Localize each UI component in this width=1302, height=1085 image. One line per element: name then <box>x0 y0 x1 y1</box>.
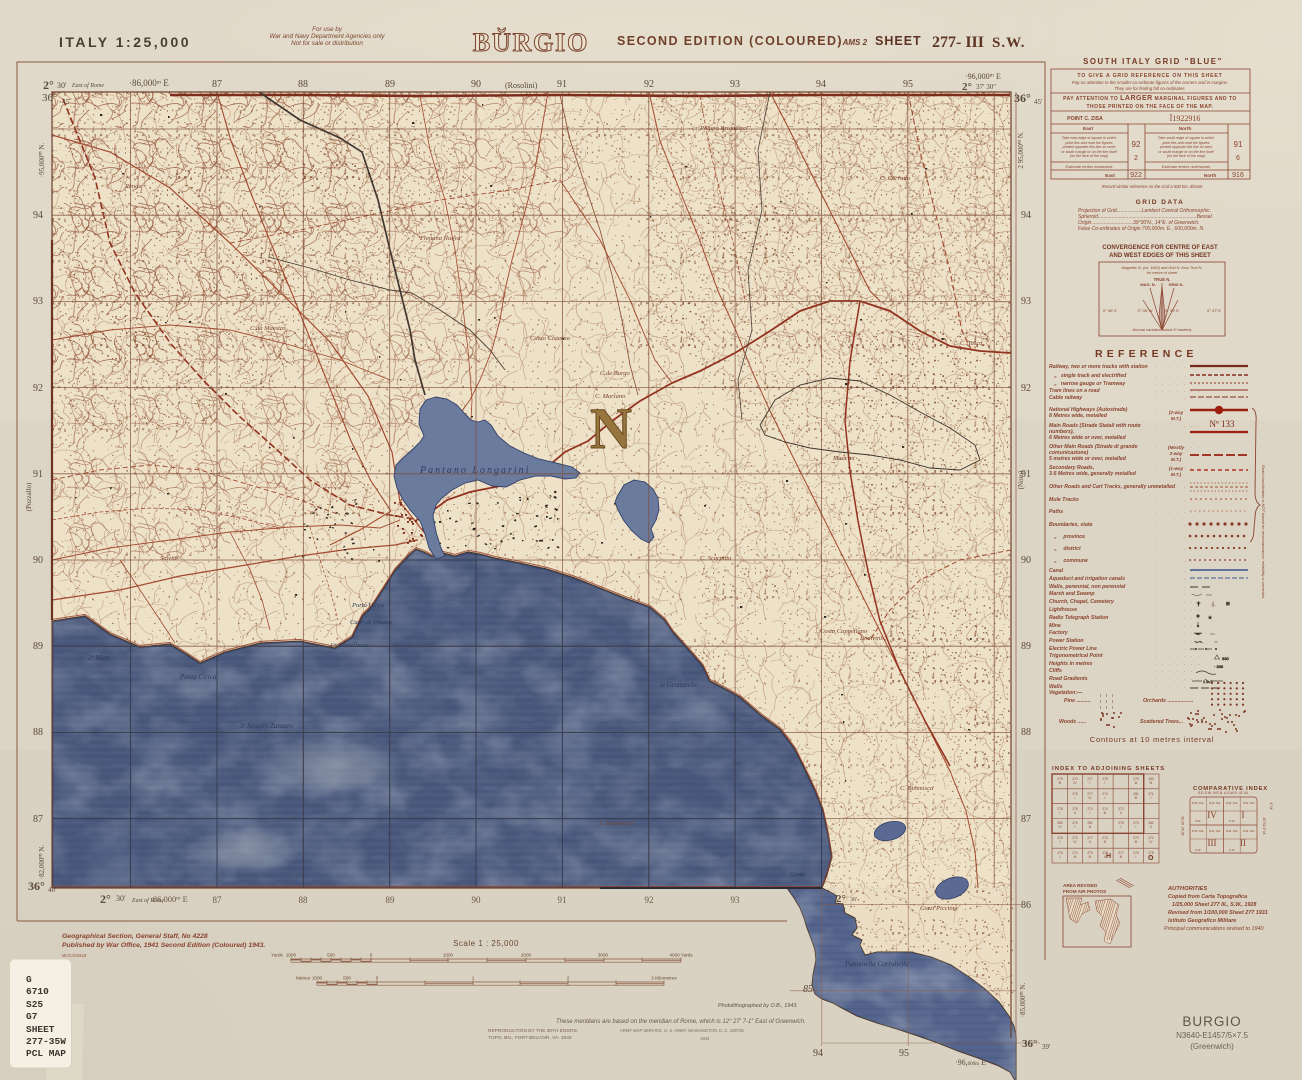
svg-text:88: 88 <box>33 727 43 738</box>
svg-text:39′: 39′ <box>1042 1043 1051 1051</box>
svg-text:2°: 2° <box>836 893 846 905</box>
svg-text:I: I <box>1105 796 1106 800</box>
svg-text:0° 47′ E: 0° 47′ E <box>1207 308 1221 313</box>
svg-text:92: 92 <box>1021 383 1031 394</box>
svg-text:III: III <box>1074 855 1077 859</box>
svg-text:C. Tasca: C. Tasca <box>960 340 983 347</box>
svg-text:Radio Telegraph Station: Radio Telegraph Station <box>1049 615 1108 621</box>
svg-text:Nº 133: Nº 133 <box>1209 419 1235 429</box>
svg-text:36°40′ 43°52: 36°40′ 43°52 <box>1181 816 1185 835</box>
svg-text:l. Scauniccio: l. Scauniccio <box>600 820 634 827</box>
svg-text:N.W. N.E.: N.W. N.E. <box>1209 801 1221 805</box>
svg-text:4000 Yards: 4000 Yards <box>669 953 693 958</box>
svg-text:Heights in metres: Heights in metres <box>1049 661 1093 667</box>
svg-text:M.T.): M.T.) <box>1171 457 1182 462</box>
svg-text:H: H <box>1106 853 1111 860</box>
svg-text:Walls, perennial, non perennia: Walls, perennial, non perennial <box>1049 584 1126 590</box>
svg-text:I: I <box>1060 811 1061 815</box>
svg-text:Yards: Yards <box>271 953 283 958</box>
svg-text:Estimate tenths eastwards: Estimate tenths eastwards <box>1066 164 1113 169</box>
svg-text:N: N <box>590 396 632 461</box>
svg-text:Scattered Trees...: Scattered Trees... <box>1140 719 1183 725</box>
svg-text:SHEET: SHEET <box>26 1024 55 1035</box>
svg-text:N.W. N.E.: N.W. N.E. <box>1192 829 1204 833</box>
svg-text:·95,000m N.: ·95,000m N. <box>38 143 47 178</box>
svg-text:Pantanella Corrubella: Pantanella Corrubella <box>844 960 909 968</box>
svg-text:S.W.: S.W. <box>992 35 1025 51</box>
svg-text:(1-way: (1-way <box>1169 466 1184 471</box>
svg-text:(Mostly: (Mostly <box>1168 445 1185 450</box>
svg-text:Vegetation:—: Vegetation:— <box>1049 690 1083 696</box>
svg-text:N.W. N.E.: N.W. N.E. <box>1243 829 1255 833</box>
svg-text:36°: 36° <box>1014 91 1031 105</box>
svg-text:93: 93 <box>33 296 43 307</box>
svg-text:Renda: Renda <box>124 183 142 190</box>
svg-text:2°: 2° <box>100 892 111 906</box>
svg-text:Canᵈᵒ di Pinona: Canᵈᵒ di Pinona <box>350 619 392 626</box>
svg-text:45′: 45′ <box>62 98 71 106</box>
svg-text:92: 92 <box>645 895 654 905</box>
svg-text:91: 91 <box>558 895 567 905</box>
svg-text:G7: G7 <box>26 1011 38 1022</box>
svg-text:SOUTH ITALY GRID "BLUE": SOUTH ITALY GRID "BLUE" <box>1083 57 1223 66</box>
svg-text:„ district: „ district <box>1049 546 1081 552</box>
svg-text:Pine ..........: Pine .......... <box>1064 698 1091 704</box>
svg-text:Scale 1 : 25,000: Scale 1 : 25,000 <box>453 939 519 948</box>
svg-text:I: I <box>1075 796 1076 800</box>
svg-text:False Co-ordinates of Origin 7: False Co-ordinates of Origin 700,000m. E… <box>1078 226 1204 232</box>
svg-text:Power Station: Power Station <box>1049 638 1084 644</box>
svg-text:Copied from Carta Topografica: Copied from Carta Topografica <box>1168 894 1247 900</box>
svg-text:C. Bimmisca: C. Bimmisca <box>900 785 933 792</box>
svg-text:Pantano Longarini: Pantano Longarini <box>419 465 530 476</box>
svg-text:Not for sale or distribution: Not for sale or distribution <box>291 40 363 47</box>
svg-text:40′: 40′ <box>48 886 57 894</box>
svg-text:III: III <box>1104 840 1107 844</box>
svg-text:2 95,000m N.: 2 95,000m N. <box>1017 131 1026 169</box>
svg-text:91: 91 <box>557 79 567 90</box>
svg-text:III: III <box>1120 855 1123 859</box>
svg-text:N.W. N.E.: N.W. N.E. <box>1192 801 1204 805</box>
svg-text:2°: 2° <box>43 78 54 92</box>
svg-text:I: I <box>1090 811 1091 815</box>
svg-text:le Grottarelle: le Grottarelle <box>660 681 698 689</box>
svg-text:Estimate tenths northwards: Estimate tenths northwards <box>1162 164 1210 169</box>
svg-text:II: II <box>1150 825 1152 829</box>
svg-text:ARMY MAP SERVICE, U. S. ARMY,: ARMY MAP SERVICE, U. S. ARMY, WASHINGTON… <box>620 1028 744 1033</box>
svg-text:Electric Power Line: Electric Power Line <box>1049 646 1097 652</box>
svg-text:Record similar reference on th: Record similar reference on the Grid a 5… <box>1102 184 1203 189</box>
svg-text:I: I <box>1090 781 1091 785</box>
svg-text:2°: 2° <box>962 81 972 93</box>
svg-text:.......: ....... <box>1155 646 1206 651</box>
svg-text:1000: 1000 <box>312 976 323 981</box>
svg-text:4°04: 4°04 <box>1269 802 1273 809</box>
svg-text:Published by War Office, 1941: Published by War Office, 1941 Second Edi… <box>62 942 265 949</box>
svg-text:·82,000m N.: ·82,000m N. <box>38 845 47 880</box>
svg-text:III: III <box>1135 781 1138 785</box>
svg-text:THOSE PRINTED ON THE FACE OF T: THOSE PRINTED ON THE FACE OF THE MAP. <box>1086 104 1213 110</box>
svg-text:II: II <box>1120 811 1122 815</box>
svg-text:(Rosolini): (Rosolini) <box>505 81 538 90</box>
svg-text:Grotta: Grotta <box>790 872 806 878</box>
svg-text:94: 94 <box>816 79 826 90</box>
svg-text:AREA REVISED: AREA REVISED <box>1063 883 1098 888</box>
svg-text:CONVERGENCE FOR CENTRE OF EAST: CONVERGENCE FOR CENTRE OF EAST <box>1102 245 1218 251</box>
svg-text:III: III <box>1104 811 1107 815</box>
svg-text:Maucini: Maucini <box>832 455 855 462</box>
svg-text:·86,000m E: ·86,000m E <box>150 894 188 904</box>
svg-text:91: 91 <box>1234 140 1243 149</box>
svg-text:I: I <box>1105 781 1106 785</box>
svg-text:Ī1922916: Ī1922916 <box>1170 114 1201 123</box>
svg-text:8 Metres wide, metalled: 8 Metres wide, metalled <box>1049 413 1108 419</box>
svg-text:·85,000m N.: ·85,000m N. <box>1019 983 1028 1018</box>
svg-text:500: 500 <box>343 976 351 981</box>
svg-text:36°: 36° <box>42 92 57 104</box>
svg-text:✝: ✝ <box>1196 601 1201 608</box>
svg-text:Principal communications revis: Principal communications revised to 1940… <box>1164 926 1265 932</box>
svg-text:87: 87 <box>33 814 43 825</box>
svg-text:3-5 Metres wide, generally met: 3-5 Metres wide, generally metalled <box>1049 471 1137 477</box>
svg-text:88: 88 <box>1021 727 1031 738</box>
svg-text:330: 330 <box>1222 656 1229 661</box>
svg-text:G: G <box>26 974 32 985</box>
svg-text:III: III <box>1135 796 1138 800</box>
svg-text:Marsh and Swamp: Marsh and Swamp <box>1049 591 1095 597</box>
svg-text:95: 95 <box>899 1048 909 1059</box>
svg-text:500: 500 <box>327 953 335 958</box>
svg-text:GRID DATA: GRID DATA <box>1136 199 1185 206</box>
svg-text:87: 87 <box>212 79 222 90</box>
svg-text:printed opposite this line so: printed opposite this line so west <box>1159 145 1213 149</box>
svg-text:1000: 1000 <box>443 953 454 958</box>
svg-text:1943: 1943 <box>700 1036 710 1041</box>
svg-text:C. Mariano: C. Mariano <box>595 393 626 400</box>
svg-text:⛪: ⛪ <box>1210 601 1216 608</box>
svg-text:III: III <box>1059 781 1062 785</box>
svg-text:89: 89 <box>33 641 43 652</box>
svg-text:III: III <box>1089 825 1092 829</box>
svg-text:S.W.: S.W. <box>1229 819 1235 823</box>
svg-text:N3640-E1457/5×7.5: N3640-E1457/5×7.5 <box>1176 1031 1248 1040</box>
svg-text:Revised from 1/100,000 Sheet: Revised from 1/100,000 Sheet 277 1931 <box>1168 910 1268 916</box>
svg-text:Photolithographed by O.B., 194: Photolithographed by O.B., 1943. <box>718 1003 798 1009</box>
svg-text:94: 94 <box>813 1048 823 1059</box>
svg-text:93: 93 <box>1021 296 1031 307</box>
svg-text:War and Navy Department Agenci: War and Navy Department Agencies only <box>269 33 385 40</box>
svg-text:I: I <box>1060 855 1061 859</box>
svg-text:(2-way: (2-way <box>1169 410 1184 415</box>
svg-text:N.W. N.E.: N.W. N.E. <box>1226 829 1238 833</box>
svg-text:SECOND EDITION (COLOURED): SECOND EDITION (COLOURED) <box>617 34 843 48</box>
svg-text:0: 0 <box>376 976 379 981</box>
svg-text:Aqueduct and irrigation canals: Aqueduct and irrigation canals <box>1048 576 1125 582</box>
svg-text:I: I <box>1242 810 1245 820</box>
svg-text:Canal: Canal <box>1049 568 1064 574</box>
svg-text:Cliffs: Cliffs <box>1049 668 1062 674</box>
svg-text:S.E.S.W. N.E.N. A S.W.S. 41°44: S.E.S.W. N.E.N. A S.W.S. 41°44 <box>1198 791 1248 795</box>
svg-text:30′: 30′ <box>57 81 67 90</box>
svg-text:Orchards ..................: Orchards .................. <box>1143 698 1193 704</box>
svg-text:Contours at 10 metres interval: Contours at 10 metres interval <box>1090 735 1214 744</box>
svg-text:II: II <box>1089 840 1091 844</box>
svg-text:POINT C. ZISA: POINT C. ZISA <box>1067 116 1103 122</box>
svg-text:(on the face of the map): (on the face of the map) <box>1070 154 1108 158</box>
svg-text:.......: ....... <box>1155 558 1206 563</box>
svg-text:92: 92 <box>33 383 43 394</box>
svg-text:Poggio Brigadieci: Poggio Brigadieci <box>699 125 748 132</box>
svg-text:Mine: Mine <box>1049 623 1061 629</box>
svg-text:ı: ı <box>1106 705 1107 711</box>
svg-text:.......: ....... <box>1155 584 1206 589</box>
svg-text:.......: ....... <box>1155 497 1206 502</box>
svg-text:- AMS 2: - AMS 2 <box>838 38 868 47</box>
svg-text:Pay no attention to the smalle: Pay no attention to the smaller co-ordin… <box>1072 80 1228 85</box>
svg-text:C. Corrado: C. Corrado <box>880 175 911 182</box>
svg-text:.......: ....... <box>1155 653 1206 658</box>
svg-text:I: I <box>1136 855 1137 859</box>
svg-text:S.W.: S.W. <box>1195 819 1201 823</box>
svg-text:.......: ....... <box>1155 546 1206 551</box>
svg-text:277-35W: 277-35W <box>26 1036 66 1047</box>
svg-text:277- III: 277- III <box>932 34 984 51</box>
svg-text:FROM AIR PHOTOS: FROM AIR PHOTOS <box>1063 889 1106 894</box>
svg-text:SHEET: SHEET <box>875 34 922 48</box>
svg-text:1000: 1000 <box>286 953 297 958</box>
svg-text:45′: 45′ <box>1034 98 1043 106</box>
svg-text:„ province: „ province <box>1049 534 1085 540</box>
svg-text:95: 95 <box>903 79 913 90</box>
svg-text:Woods ......: Woods ...... <box>1059 719 1086 725</box>
svg-text:North: North <box>1179 126 1192 132</box>
svg-text:For use by: For use by <box>312 26 343 33</box>
svg-text:36′: 36′ <box>850 897 858 903</box>
svg-text:85: 85 <box>803 984 813 995</box>
svg-text:94: 94 <box>1021 210 1031 221</box>
svg-text:0° 56′ E: 0° 56′ E <box>1103 308 1117 313</box>
svg-text:East of Rome: East of Rome <box>71 82 104 89</box>
svg-text:„ single track and electrifie: „ single track and electrified <box>1049 373 1127 379</box>
svg-text:89: 89 <box>386 895 396 905</box>
svg-text:87: 87 <box>1021 814 1031 825</box>
svg-text:92: 92 <box>644 79 654 90</box>
svg-text:94: 94 <box>33 210 43 221</box>
svg-text:89: 89 <box>385 79 395 90</box>
svg-text:90: 90 <box>33 555 43 566</box>
svg-text:These meridians are based on t: These meridians are based on the meridia… <box>556 1019 806 1025</box>
svg-text:922: 922 <box>1130 172 1142 179</box>
svg-text:PAY ATTENTION TO LARGER MARGIN: PAY ATTENTION TO LARGER MARGINAL FIGURES… <box>1063 95 1237 102</box>
svg-text:·96,000m E: ·96,000m E <box>965 72 1001 81</box>
svg-text:Cozzo Cisterna: Cozzo Cisterna <box>530 335 570 342</box>
svg-text:Punta Cirica: Punta Cirica <box>179 673 217 681</box>
svg-text:6 Metres wide or over, metalle: 6 Metres wide or over, metalled <box>1049 435 1127 441</box>
svg-text:3 Kilometres: 3 Kilometres <box>651 976 677 981</box>
svg-text:2-way: 2-way <box>1169 451 1183 456</box>
svg-text:Istituto Geografico Militare: Istituto Geografico Militare <box>1168 918 1236 924</box>
svg-text:Trigonometrical Point: Trigonometrical Point <box>1049 653 1103 659</box>
svg-text:(Pozzallo): (Pozzallo) <box>25 482 33 511</box>
svg-text:S.W.: S.W. <box>1195 848 1201 852</box>
svg-text:(Noto): (Noto) <box>1017 470 1025 489</box>
svg-text:916: 916 <box>1232 172 1244 179</box>
svg-text:N.W. N.E.: N.W. N.E. <box>1243 801 1255 805</box>
svg-text:East: East <box>1083 126 1094 132</box>
svg-text:C. Scarpitta: C. Scarpitta <box>700 555 731 562</box>
svg-text:O: O <box>1148 855 1154 862</box>
svg-text:37′ 30″: 37′ 30″ <box>976 83 996 91</box>
svg-text:PCL MAP: PCL MAP <box>26 1048 66 1059</box>
svg-text:S.W.: S.W. <box>1229 848 1235 852</box>
svg-text:Factory: Factory <box>1049 630 1069 636</box>
svg-text:90: 90 <box>471 79 481 90</box>
svg-text:„ narrow gauge or Tramway: „ narrow gauge or Tramway <box>1049 381 1126 387</box>
svg-text:TO GIVE A GRID REFERENCE ON TH: TO GIVE A GRID REFERENCE ON THIS SHEET <box>1077 73 1222 79</box>
svg-text:W.O./GSGS: W.O./GSGS <box>62 953 86 958</box>
svg-text:93: 93 <box>731 895 741 905</box>
svg-text:90: 90 <box>1021 555 1031 566</box>
svg-text:GRID N.: GRID N. <box>1168 282 1183 287</box>
svg-text:89: 89 <box>1021 641 1031 652</box>
svg-text:III: III <box>1089 855 1092 859</box>
svg-text:They are for finding full co-o: They are for finding full co-ordinates. <box>1114 86 1185 91</box>
svg-text:for centre of sheet: for centre of sheet <box>1147 271 1179 275</box>
svg-text:AND WEST EDGES OF THIS SHEET: AND WEST EDGES OF THIS SHEET <box>1109 253 1211 259</box>
svg-text:.......: ....... <box>1155 676 1206 681</box>
svg-text:6: 6 <box>1236 155 1240 162</box>
svg-text:Fontana Nuova: Fontana Nuova <box>419 235 461 242</box>
svg-text:0: 0 <box>370 953 373 958</box>
svg-text:Tram lines on a road: Tram lines on a road <box>1049 388 1100 394</box>
svg-text:.......: ....... <box>1155 591 1206 596</box>
svg-text:C.de Burgo: C.de Burgo <box>600 370 630 377</box>
svg-text:I: I <box>1121 825 1122 829</box>
svg-text:Bonivini: Bonivini <box>860 635 882 642</box>
svg-text:1/25,000 Sheet 277 III., S.W: 1/25,000 Sheet 277 III., S.W., 1928 <box>1172 902 1256 908</box>
svg-text:Road classification is NOT bas: Road classification is NOT based on reco… <box>1261 465 1266 599</box>
svg-text:.......: ....... <box>1155 684 1206 689</box>
svg-text:Magnetic N. (ca. 1943) and Gri: Magnetic N. (ca. 1943) and Grid N. from … <box>1122 266 1203 270</box>
svg-text:⊞: ⊞ <box>1226 601 1230 606</box>
svg-text:43°52 4°04: 43°52 4°04 <box>1262 818 1266 835</box>
svg-text:INDEX TO ADJOINING SHEETS: INDEX TO ADJOINING SHEETS <box>1052 766 1165 772</box>
svg-text:I: I <box>1151 796 1152 800</box>
svg-text:86: 86 <box>1021 900 1031 911</box>
svg-text:I: I <box>1075 825 1076 829</box>
svg-text:IV: IV <box>1207 810 1217 820</box>
svg-text:East: East <box>1105 173 1115 178</box>
svg-text:·86,000m E: ·86,000m E <box>129 78 169 88</box>
svg-text:Boundaries, state: Boundaries, state <box>1049 522 1093 528</box>
svg-text:(on the face of the map): (on the face of the map) <box>1167 154 1205 158</box>
svg-text:87: 87 <box>213 895 223 905</box>
svg-text:Cozzi Piccioni: Cozzi Piccioni <box>920 905 958 912</box>
svg-text:printed opposite this line so: printed opposite this line so north <box>1062 145 1116 149</box>
svg-text:· 339: · 339 <box>1214 664 1224 669</box>
svg-text:BŬRGIO: BŬRGIO <box>473 28 589 57</box>
svg-text:BURGIO: BURGIO <box>1182 1014 1241 1029</box>
svg-text:93: 93 <box>730 79 740 90</box>
svg-text:REPRODUCTION BY THE 30TH ENGRS: REPRODUCTION BY THE 30TH ENGRS. <box>488 1028 578 1034</box>
svg-text:Railway, two or more tracks wi: Railway, two or more tracks with station <box>1049 364 1148 370</box>
svg-text:Porto Ulisse: Porto Ulisse <box>351 602 385 609</box>
svg-text:M.T.): M.T.) <box>1171 416 1182 421</box>
svg-text:N.W. N.E.: N.W. N.E. <box>1226 801 1238 805</box>
svg-text:ı: ı <box>1100 705 1101 711</box>
svg-text:II: II <box>1074 811 1076 815</box>
svg-text:AUTHORITIES: AUTHORITIES <box>1167 886 1207 892</box>
svg-text:REFERENCE: REFERENCE <box>1095 348 1198 360</box>
svg-text:TOPO. BN., FORT BELVOIR, VA.: TOPO. BN., FORT BELVOIR, VA. 1943 <box>488 1035 572 1041</box>
svg-text:1: 1 <box>472 976 475 981</box>
svg-text:C.da Maestro: C.da Maestro <box>250 325 286 332</box>
svg-text:III: III <box>1135 840 1138 844</box>
svg-text:„ commune: „ commune <box>1049 558 1088 564</box>
svg-text:North: North <box>1204 173 1216 178</box>
svg-text:2ᵒ Mare: 2ᵒ Mare <box>88 654 110 662</box>
svg-text:Church, Chapel, Cemetery: Church, Chapel, Cemetery <box>1049 599 1115 605</box>
svg-text:88: 88 <box>298 79 308 90</box>
svg-text:90: 90 <box>472 895 482 905</box>
svg-text:II: II <box>1240 838 1246 848</box>
svg-text:2: 2 <box>1134 155 1138 162</box>
svg-text:5 metres wide or over, metalle: 5 metres wide or over, metalled <box>1049 456 1127 462</box>
svg-text:I: I <box>1060 840 1061 844</box>
svg-text:91: 91 <box>33 469 43 480</box>
svg-text:Paths: Paths <box>1049 509 1063 515</box>
svg-text:1ᵒᵒ Castellazzo: 1ᵒᵒ Castellazzo <box>330 642 369 649</box>
svg-text:Take east edge of square in wh: Take east edge of square in which <box>1062 136 1116 140</box>
svg-text:S25: S25 <box>26 999 43 1010</box>
svg-text:(Greenwich): (Greenwich) <box>1190 1042 1234 1051</box>
svg-text:.......: ....... <box>1155 423 1206 428</box>
svg-text:.......: ....... <box>1155 668 1206 673</box>
svg-text:III: III <box>1208 838 1217 848</box>
svg-text:2000: 2000 <box>521 953 532 958</box>
svg-text:M.T.): M.T.) <box>1171 472 1182 477</box>
svg-text:Geographical Section, General: Geographical Section, General Staff, No … <box>62 933 208 940</box>
svg-text:.......: ....... <box>1155 484 1206 489</box>
svg-text:Metres: Metres <box>296 976 311 981</box>
svg-text:3000: 3000 <box>598 953 609 958</box>
svg-text:36°: 36° <box>28 879 45 893</box>
svg-text:2: 2 <box>567 976 570 981</box>
svg-text:3ᵒ Scoglio Zanzaro: 3ᵒ Scoglio Zanzaro <box>239 722 294 730</box>
svg-text:30′: 30′ <box>116 894 126 903</box>
svg-text:MAG. N.: MAG. N. <box>1140 282 1156 287</box>
svg-text:Cable railway: Cable railway <box>1049 395 1083 401</box>
svg-text:36°: 36° <box>1022 1038 1037 1050</box>
svg-text:Costa Cappellano: Costa Cappellano <box>820 628 868 635</box>
svg-text:ı: ı <box>1112 705 1113 711</box>
svg-text:Lighthouse: Lighthouse <box>1049 607 1077 613</box>
svg-text:.......: ....... <box>1155 534 1206 539</box>
svg-text:III: III <box>1150 781 1153 785</box>
svg-text:I: I <box>1136 825 1137 829</box>
svg-text:6710: 6710 <box>26 986 49 997</box>
svg-text:Salvia: Salvia <box>160 555 176 562</box>
svg-text:.......: ....... <box>1155 661 1206 666</box>
svg-text:ITALY 1:25,000: ITALY 1:25,000 <box>59 34 191 50</box>
svg-text:.......: ....... <box>1155 509 1206 514</box>
svg-text:Mule Tracks: Mule Tracks <box>1049 497 1079 503</box>
svg-text:88: 88 <box>299 895 309 905</box>
svg-text:92: 92 <box>1132 140 1141 149</box>
svg-text:Road Gradients: Road Gradients <box>1049 676 1088 682</box>
svg-text:N.W. N.E.: N.W. N.E. <box>1209 829 1221 833</box>
svg-text:Take south edge of square in w: Take south edge of square in which <box>1158 136 1214 140</box>
